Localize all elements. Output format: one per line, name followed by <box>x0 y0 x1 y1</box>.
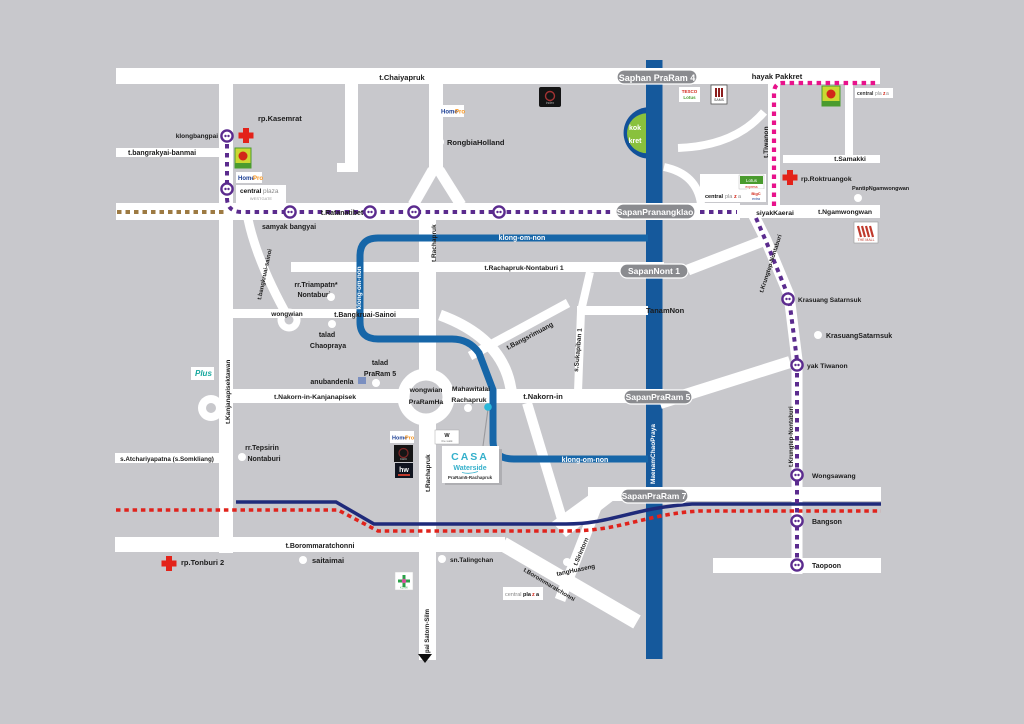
svg-text:KrasuangSatarnsuk: KrasuangSatarnsuk <box>826 333 892 340</box>
svg-text:siyakKaerai: siyakKaerai <box>756 210 794 217</box>
svg-text:klong-om-non: klong-om-non <box>562 457 609 464</box>
svg-text:yak Tiwanon: yak Tiwanon <box>807 363 848 370</box>
svg-text:t.Bangkruai-Sainoi: t.Bangkruai-Sainoi <box>334 312 396 319</box>
svg-text:kok: kok <box>629 125 641 132</box>
svg-text:klongbangpai: klongbangpai <box>176 133 218 140</box>
svg-text:Plus: Plus <box>195 369 212 378</box>
svg-text:pla: pla <box>725 194 733 200</box>
svg-text:plaza: plaza <box>263 188 279 195</box>
svg-text:rr.Triampatn*: rr.Triampatn* <box>294 282 337 289</box>
svg-text:SapanPranangklao: SapanPranangklao <box>617 207 694 217</box>
svg-text:PraRam5-Rachapruk: PraRam5-Rachapruk <box>448 475 493 480</box>
svg-text:WESTGATE: WESTGATE <box>250 196 272 201</box>
svg-text:Nontaburi: Nontaburi <box>247 456 280 463</box>
svg-text:t.Krungtep-Nontaburi: t.Krungtep-Nontaburi <box>789 406 795 467</box>
svg-text:index: index <box>546 101 555 105</box>
svg-text:MaenamChaoPraya: MaenamChaoPraya <box>650 424 657 484</box>
svg-text:t.Tiwanon: t.Tiwanon <box>763 126 770 158</box>
svg-text:pai Satorn-Silm: pai Satorn-Silm <box>425 609 431 653</box>
svg-text:wongwian: wongwian <box>409 387 443 394</box>
svg-text:PantipNgamwongwan: PantipNgamwongwan <box>852 186 910 192</box>
svg-text:pla: pla <box>875 91 882 97</box>
svg-text:t.Rachapruk: t.Rachapruk <box>431 224 438 262</box>
svg-text:Mahawitalai: Mahawitalai <box>452 386 490 393</box>
svg-text:hw: hw <box>399 467 409 474</box>
svg-text:Lotus: Lotus <box>746 178 758 183</box>
svg-text:rp.Kasemrat: rp.Kasemrat <box>258 114 302 123</box>
svg-text:t.Chaiyapruk: t.Chaiyapruk <box>379 73 425 82</box>
svg-text:SapanNont 1: SapanNont 1 <box>628 266 680 276</box>
svg-text:talad: talad <box>319 332 335 339</box>
svg-text:rp.Tonburi 2: rp.Tonburi 2 <box>181 558 224 567</box>
svg-text:wongwian: wongwian <box>270 311 302 318</box>
svg-text:Saphan PraRam 4: Saphan PraRam 4 <box>619 73 696 83</box>
svg-text:samyak bangyai: samyak bangyai <box>262 224 316 231</box>
svg-text:central: central <box>705 194 724 200</box>
svg-text:t.Nakorn-in: t.Nakorn-in <box>523 392 563 401</box>
svg-text:the walk: the walk <box>441 439 453 443</box>
svg-text:t.Kanjanapisektawan: t.Kanjanapisektawan <box>225 360 232 424</box>
svg-text:SapanPraRam 7: SapanPraRam 7 <box>622 491 687 501</box>
svg-text:central: central <box>857 91 874 97</box>
svg-text:SapanPraRam 5: SapanPraRam 5 <box>626 392 691 402</box>
svg-text:t.bangrakyai-banmai: t.bangrakyai-banmai <box>128 150 196 157</box>
svg-text:CASA: CASA <box>451 451 489 463</box>
svg-text:TanamNon: TanamNon <box>646 306 685 315</box>
svg-text:s.Atchariyapatna (s.Somkliang): s.Atchariyapatna (s.Somkliang) <box>120 456 214 463</box>
svg-text:pla: pla <box>523 592 532 598</box>
svg-text:THE MALL: THE MALL <box>857 238 874 242</box>
svg-text:t.Ratanatibet: t.Ratanatibet <box>321 210 364 217</box>
svg-text:t.Nakorn-in-Kanjanapisek: t.Nakorn-in-Kanjanapisek <box>274 394 356 401</box>
svg-text:sn.Talingchan: sn.Talingchan <box>450 557 493 564</box>
svg-text:rp.Roktruangok: rp.Roktruangok <box>801 176 852 183</box>
svg-text:RongbiaHolland: RongbiaHolland <box>447 138 505 147</box>
svg-text:Nontaburi: Nontaburi <box>297 292 330 299</box>
svg-text:saitaimai: saitaimai <box>312 556 344 565</box>
svg-text:Rachapruk: Rachapruk <box>451 397 486 404</box>
svg-text:z: z <box>532 592 535 598</box>
svg-text:a: a <box>886 91 889 97</box>
svg-text:t.Ngamwongwan: t.Ngamwongwan <box>818 209 872 216</box>
svg-text:klong-om-non: klong-om-non <box>499 235 546 242</box>
svg-text:Wongsawang: Wongsawang <box>812 473 856 480</box>
svg-text:Pro: Pro <box>405 436 415 442</box>
svg-text:PraRam 5: PraRam 5 <box>364 371 396 378</box>
svg-text:extra: extra <box>752 197 760 201</box>
svg-text:t.Samakki: t.Samakki <box>834 156 866 163</box>
svg-text:BigC: BigC <box>751 191 760 196</box>
svg-text:Waterside: Waterside <box>453 465 486 472</box>
svg-text:Pro: Pro <box>455 110 465 116</box>
svg-text:Chaopraya: Chaopraya <box>310 343 346 350</box>
svg-text:KLINIK: KLINIK <box>400 587 408 590</box>
svg-text:Lotus: Lotus <box>683 95 696 100</box>
svg-text:t.Rachapruk: t.Rachapruk <box>425 454 432 492</box>
svg-text:Taopoon: Taopoon <box>812 563 841 570</box>
svg-text:hayak Pakkret: hayak Pakkret <box>752 72 803 81</box>
svg-text:anubandenla: anubandenla <box>310 379 353 386</box>
svg-text:t.Borommaratchonni: t.Borommaratchonni <box>286 543 355 550</box>
svg-text:Krasuang Satarnsuk: Krasuang Satarnsuk <box>798 297 862 304</box>
svg-text:PraRamHa: PraRamHa <box>409 399 444 406</box>
svg-text:express: express <box>745 185 758 189</box>
svg-text:klong-om-non: klong-om-non <box>356 266 363 309</box>
svg-text:central: central <box>505 592 522 598</box>
svg-text:z: z <box>734 194 737 200</box>
svg-text:central: central <box>240 188 262 195</box>
svg-text:talad: talad <box>372 360 388 367</box>
svg-text:rr.Tepsirin: rr.Tepsirin <box>245 445 279 452</box>
svg-text:CHIC: CHIC <box>400 457 408 461</box>
svg-text:Pro: Pro <box>253 176 263 182</box>
svg-text:Bangson: Bangson <box>812 519 842 526</box>
svg-text:SAMS: SAMS <box>714 98 725 102</box>
svg-text:TESCO: TESCO <box>682 89 698 94</box>
svg-text:t.Rachapruk-Nontaburi 1: t.Rachapruk-Nontaburi 1 <box>484 265 564 272</box>
svg-text:kret: kret <box>629 138 643 145</box>
